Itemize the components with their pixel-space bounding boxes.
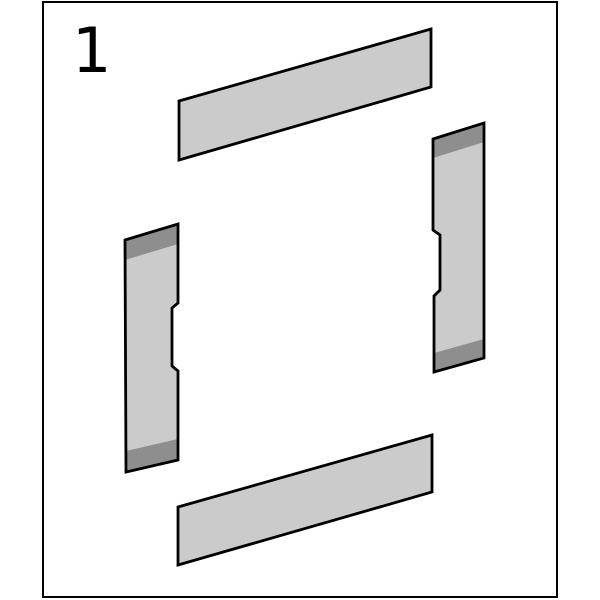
left-side-panel-face [125,224,178,472]
step-number: 1 [72,20,111,82]
instruction-page: 1 [0,0,600,600]
bottom-panel-face [178,435,432,565]
right-side-panel [433,123,484,372]
bottom-panel [178,435,432,565]
assembly-step-diagram [0,0,600,600]
top-panel-face [179,29,431,160]
top-panel [179,29,431,160]
left-side-panel [125,224,178,472]
